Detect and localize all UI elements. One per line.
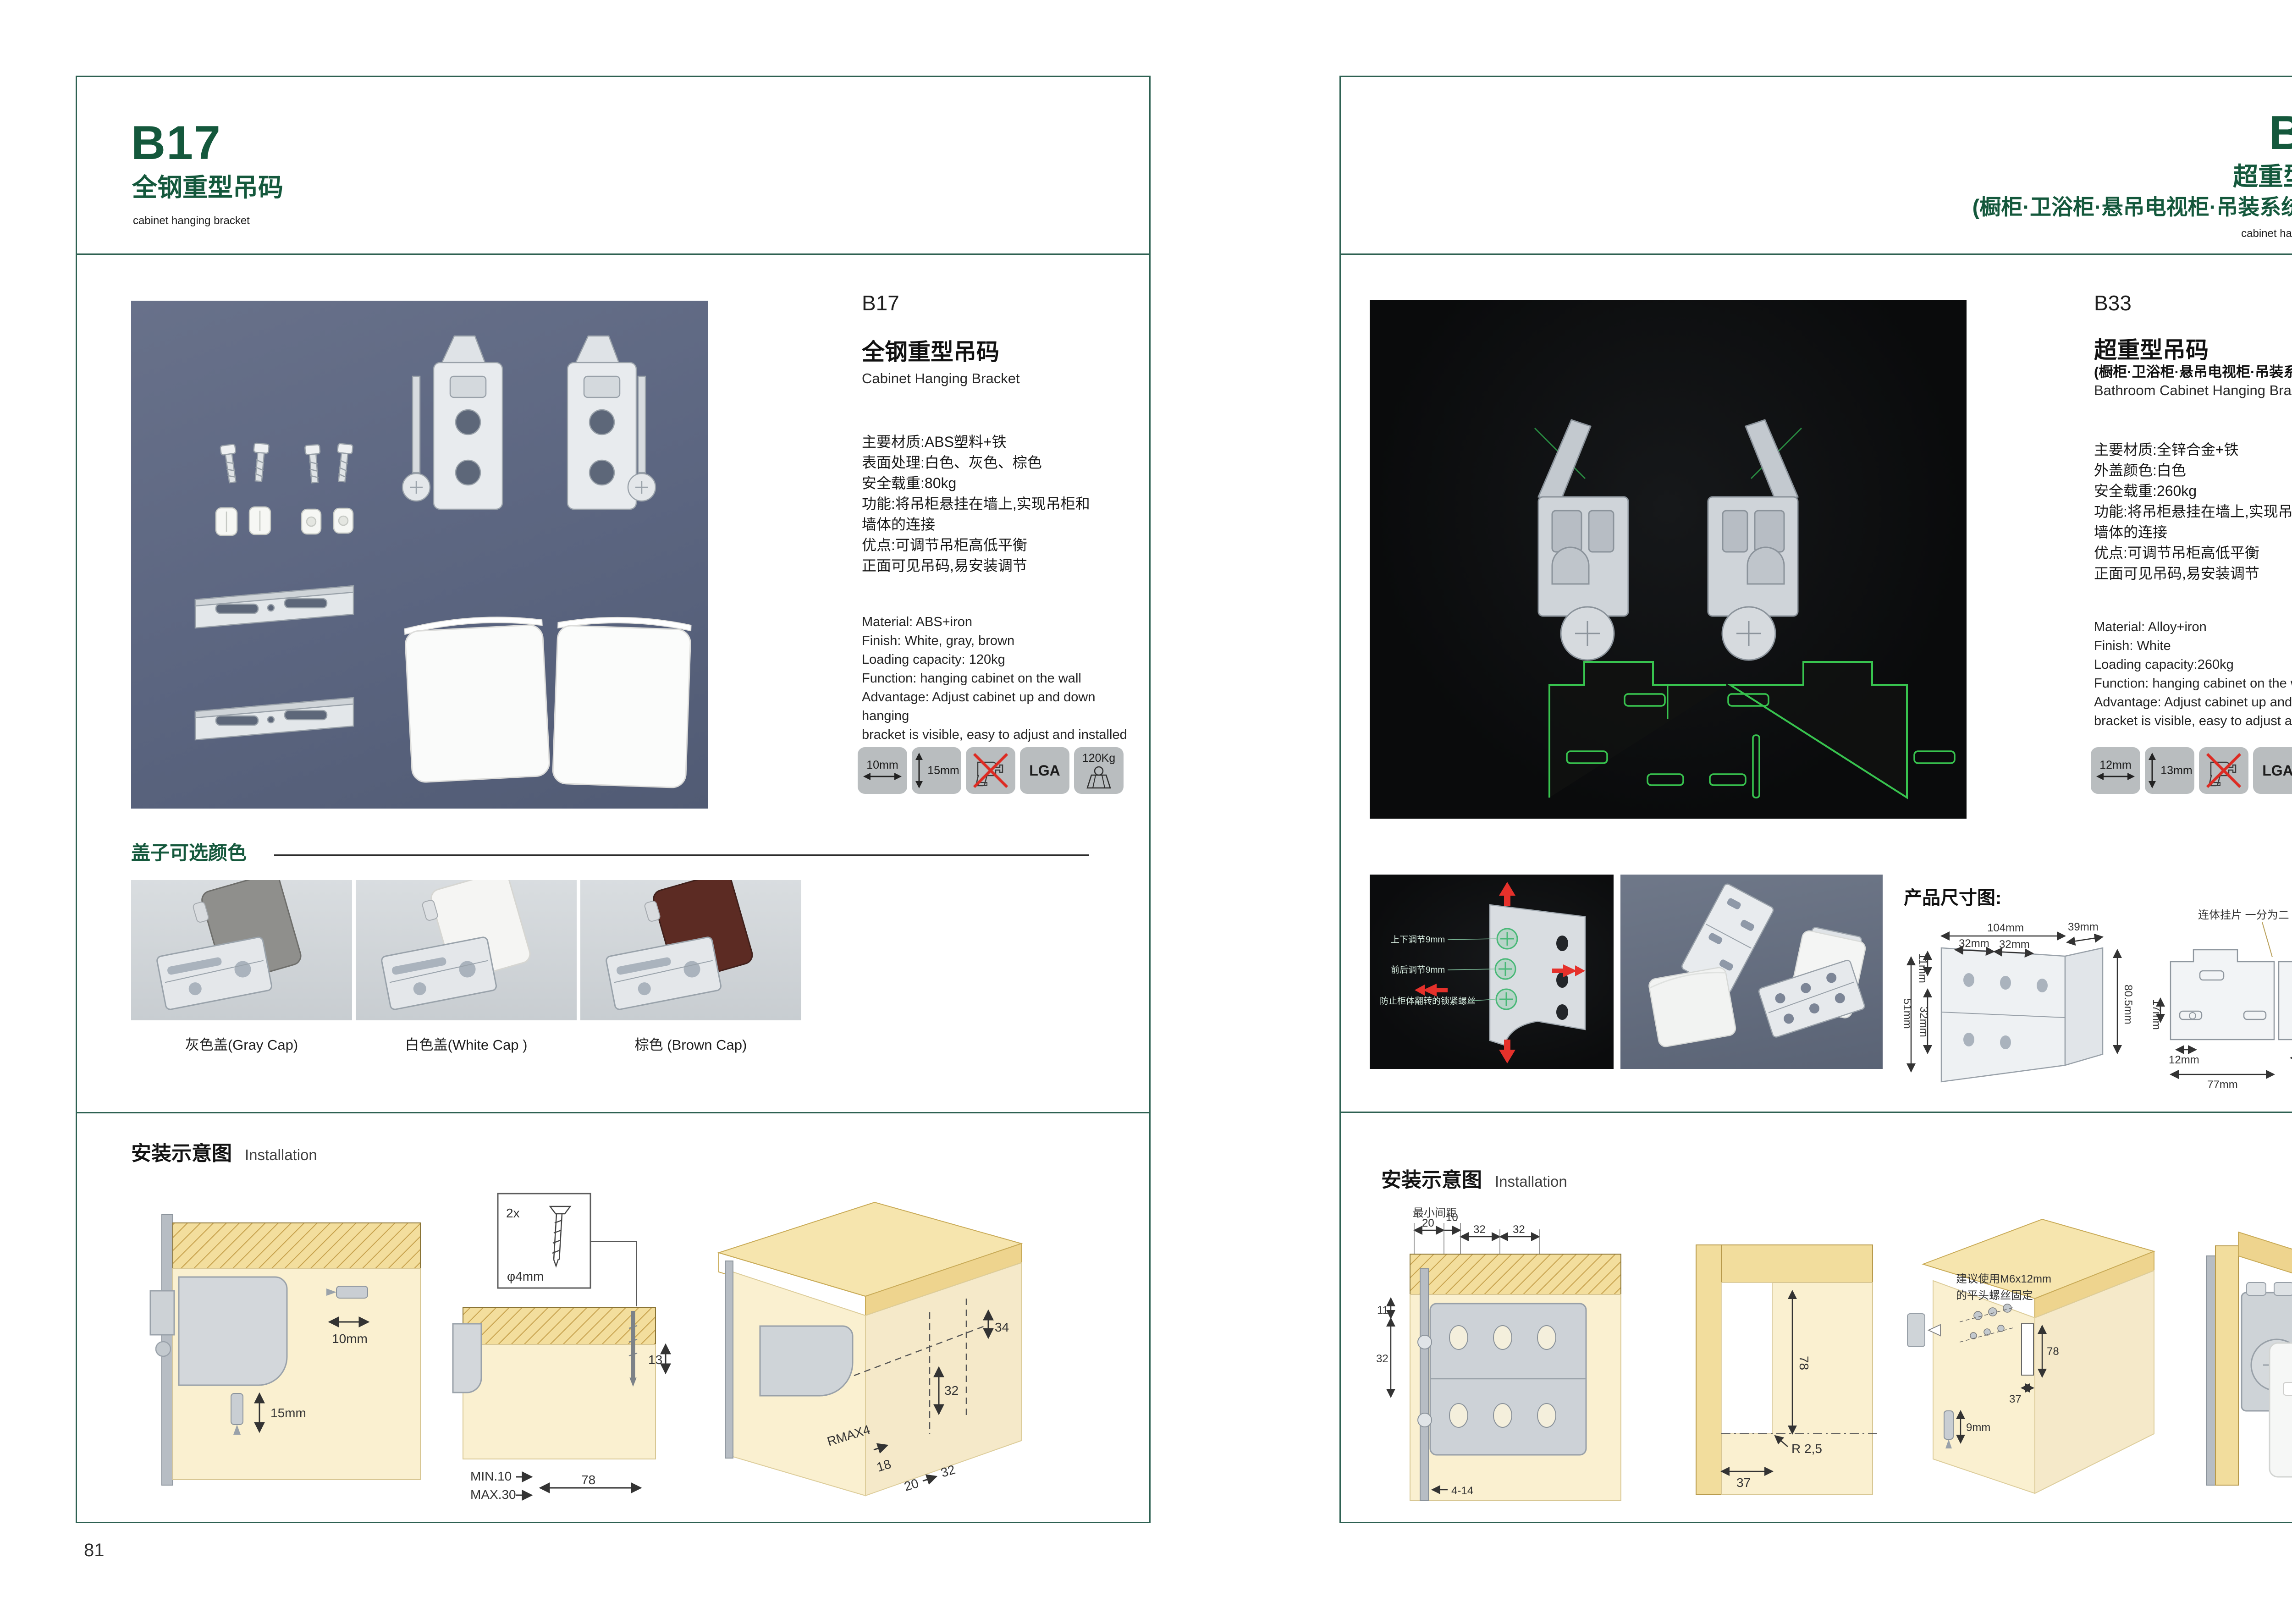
spec-line: 主要材质:ABS塑料+铁: [862, 432, 1146, 452]
dims-drawings: 104mm 32mm 32mm 39mm 80.5mm 11mm 51mm 32…: [1895, 902, 2292, 1108]
install-divider: [77, 1112, 1149, 1113]
specs-cn: 主要材质:全锌合金+铁 外盖颜色:白色 安全载重:260kg 功能:将吊柜悬挂在…: [2094, 440, 2292, 584]
spec-line: Function: hanging cabinet on the wall: [862, 669, 1146, 688]
spec-line: 优点:可调节吊柜高低平衡: [862, 535, 1146, 556]
horizontal-arrow-icon: [863, 771, 902, 782]
note-flathead: 的平头螺丝固定: [1956, 1289, 2033, 1302]
dim-32b: 32mm: [1999, 938, 2030, 951]
dim-11: 11: [1377, 1304, 1388, 1316]
dim-32b: 32: [1513, 1223, 1525, 1236]
weight-icon: [1082, 766, 1116, 789]
cap-label-white: 白色盖(White Cap ): [356, 1033, 577, 1054]
install-heading-cn: 安装示意图: [1381, 1169, 1482, 1191]
spec-line: 外盖颜色:白色: [2094, 460, 2292, 481]
dim-77mm: 77mm: [2207, 1079, 2238, 1091]
spec-line: 正面可见吊码,易安装调节: [862, 556, 1146, 576]
horizontal-arrow-icon: [2096, 771, 2135, 782]
specs-en: Material: Alloy+iron Finish: White Loadi…: [2094, 618, 2292, 731]
mounted-bracket: [2242, 1283, 2292, 1477]
install-divider: [1341, 1112, 2292, 1113]
spec-line: Material: Alloy+iron: [2094, 618, 2292, 637]
dim-32l: 32: [1376, 1353, 1388, 1365]
dim-37: 37: [1736, 1475, 1751, 1490]
dim-15mm: 15mm: [270, 1406, 306, 1420]
spec-line: 安全载重:260kg: [2094, 481, 2292, 501]
spec-line: 主要材质:全锌合金+铁: [2094, 440, 2292, 460]
cap-swatch-white: [356, 880, 577, 1020]
label-frontback: 前后调节9mm: [1391, 965, 1445, 975]
spec-line: 墙体的连接: [2094, 522, 2292, 543]
parts-photo: [1620, 875, 1883, 1069]
adjust-screws: [1495, 929, 1517, 1009]
spec-line: Advantage: Adjust cabinet up and down ha…: [862, 688, 1146, 726]
dim-min10: MIN.10: [470, 1469, 512, 1483]
info-column-b33: B33 超重型吊码 (橱柜·卫浴柜·悬吊电视柜·吊装系统 专用) Bathroo…: [2094, 292, 2292, 731]
parts-photo-art: [1620, 875, 1883, 1069]
spec-line: Material: ABS+iron: [862, 613, 1146, 632]
info-name-en: Bathroom Cabinet Hanging Bracket: [2094, 381, 2292, 400]
info-code: B17: [862, 292, 1146, 314]
feature-badges-b33: 12mm 13mm LGA 260Kg: [2091, 747, 2292, 794]
dim-13: 13: [648, 1353, 662, 1367]
page-b17: B17 全钢重型吊码 cabinet hanging bracket: [76, 76, 1151, 1523]
badge-cert-label: LGA: [1029, 762, 1060, 779]
specs-en: Material: ABS+iron Finish: White, gray, …: [862, 613, 1146, 744]
product-photo-b17-art: [131, 301, 708, 809]
product-photo-b33-art: [1370, 300, 1967, 819]
spec-line: Loading capacity:260kg: [2094, 655, 2292, 674]
badge-load: 120Kg: [1074, 747, 1124, 794]
install-heading-en: Installation: [1495, 1173, 1567, 1190]
dim-4-14: 4-14: [1451, 1485, 1473, 1497]
dim-10mm: 10mm: [332, 1332, 368, 1346]
cap-white-art: [356, 880, 577, 1020]
part-plate-bottom: [1758, 959, 1865, 1038]
wall-plates: [195, 586, 353, 740]
badge-panel-height: 15mm: [912, 747, 961, 794]
badge-cert: LGA: [1020, 747, 1069, 794]
dim-10: 10: [1446, 1211, 1458, 1224]
spec-line: Function: hanging cabinet on the wall: [2094, 674, 2292, 693]
install-heading-en: Installation: [245, 1146, 317, 1163]
dim-r25: R 2,5: [1791, 1442, 1822, 1456]
badge-width-label: 12mm: [2099, 760, 2131, 771]
dim-20: 20: [1422, 1217, 1434, 1229]
page-title-code: B17: [131, 119, 221, 167]
dim-17mm: 17mm: [2150, 999, 2163, 1030]
badge-load-label: 120Kg: [1082, 753, 1115, 764]
page-title-sub: (橱柜·卫浴柜·悬吊电视柜·吊装系统 专用): [1972, 196, 2292, 218]
part-cover-white: [1648, 966, 1736, 1047]
product-photo-b17: [131, 301, 708, 809]
dim-plates-drawing: 连体挂片 一分为二 55mm 39mm 55mm 17mm 12mm 77mm: [2150, 909, 2292, 1091]
bracket-left: [1538, 420, 1628, 660]
install-heading-b17: 安装示意图Installation: [131, 1137, 317, 1166]
dim-12mm: 12mm: [2169, 1054, 2199, 1066]
page-title-cn: 超重型吊码: [2233, 164, 2292, 189]
dim-11mm: 11mm: [1917, 953, 1929, 983]
header-divider: [1341, 253, 2292, 255]
dim-78: 78: [1797, 1356, 1811, 1370]
page-number-left: 81: [84, 1540, 105, 1561]
badge-height-label: 15mm: [927, 765, 959, 776]
spec-line: bracket is visible, easy to adjust and i…: [2094, 712, 2292, 731]
badge-width-label: 10mm: [866, 760, 898, 771]
page-title-code: B33: [2269, 109, 2292, 157]
feature-badges-b17: 10mm 15mm LGA 120Kg: [858, 747, 1124, 794]
install-drawing-spacing: 最小间距 20 10 32 32 11 32 4-14: [1371, 1200, 1646, 1521]
label-joined-plate: 连体挂片 一分为二: [2198, 909, 2289, 921]
spec-line: Finish: White: [2094, 637, 2292, 655]
leader-lines: [1448, 939, 1496, 1001]
install-drawing-mounted: [2189, 1214, 2292, 1516]
spec-line: Finish: White, gray, brown: [862, 632, 1146, 650]
badge-panel-height: 13mm: [2145, 747, 2194, 794]
info-name-sub: (橱柜·卫浴柜·悬吊电视柜·吊装系统 专用): [2094, 363, 2292, 381]
label-updown: 上下调节9mm: [1391, 935, 1445, 945]
header-divider: [77, 253, 1149, 255]
spec-line: 墙体的连接: [862, 514, 1146, 535]
note-m6x12: 建议使用M6x12mm: [1956, 1273, 2051, 1285]
cap-brown-art: [580, 880, 801, 1020]
info-name-en: Cabinet Hanging Bracket: [862, 369, 1146, 388]
dim-max30: MAX.30: [470, 1487, 516, 1502]
dim-32a: 32: [1473, 1223, 1486, 1236]
bracket-right: [1708, 420, 1798, 660]
no-drill-icon: [970, 750, 1011, 791]
cap-swatch-gray: [131, 880, 352, 1020]
badge-no-drill: [2199, 747, 2248, 794]
install-drawing-section: 10mm 15mm: [137, 1195, 430, 1507]
spec-line: 优点:可调节吊柜高低平衡: [2094, 543, 2292, 563]
specs-cn: 主要材质:ABS塑料+铁 表面处理:白色、灰色、棕色 安全载重:80kg 功能:…: [862, 432, 1146, 576]
spec-line: 安全载重:80kg: [862, 473, 1146, 494]
install-drawing-cutout: 78 R 2,5 37: [1678, 1232, 1884, 1512]
dim-37: 37: [2009, 1393, 2022, 1405]
screws: [220, 443, 353, 484]
dim-80-5mm: 80.5mm: [2122, 985, 2134, 1024]
cap-gray-art: [131, 880, 352, 1020]
install-drawing-cabinet: 34 32 RMAX4 18 20 32: [691, 1175, 1049, 1514]
dim-2x: 2x: [506, 1206, 520, 1220]
spec-line: 表面处理:白色、灰色、棕色: [862, 452, 1146, 473]
install-drawing-cabinet-b33: 建议使用M6x12mm 的平头螺丝固定 78 37 9mm: [1905, 1195, 2161, 1521]
spec-line: 功能:将吊柜悬挂在墙上,实现吊柜和: [862, 494, 1146, 514]
dim-34: 34: [995, 1320, 1009, 1334]
label-lockscrew: 防止柜体翻转的锁紧螺丝: [1380, 996, 1476, 1006]
metal-brackets: [402, 336, 656, 509]
wall-plate-outline: [1549, 662, 1907, 798]
cap-swatch-brown: [580, 880, 801, 1020]
vertical-arrow-icon: [914, 753, 925, 788]
page-subtitle-en: cabinet hanging bracket: [133, 215, 250, 226]
badge-height-label: 13mm: [2160, 765, 2192, 776]
dim-78: 78: [581, 1473, 595, 1487]
cap-label-brown: 棕色 (Brown Cap): [580, 1033, 801, 1054]
spec-line: 功能:将吊柜悬挂在墙上,实现吊柜和: [2094, 501, 2292, 522]
adjustment-photo: 上下调节9mm 前后调节9mm 防止柜体翻转的锁紧螺丝: [1370, 875, 1614, 1069]
bracket-plate: [1418, 1304, 1586, 1455]
badge-panel-width: 12mm: [2091, 747, 2140, 794]
dim-bracket-pictorial: 104mm 32mm 32mm 39mm 80.5mm 11mm 51mm 32…: [1901, 921, 2134, 1082]
spec-line: Loading capacity: 120kg: [862, 650, 1146, 669]
vertical-arrow-icon: [2147, 753, 2158, 788]
dim-32c: 32mm: [1917, 1007, 1930, 1037]
caps-heading-rule: [274, 854, 1089, 856]
spec-line: bracket is visible, easy to adjust and i…: [862, 726, 1146, 744]
badge-cert: LGA: [2253, 747, 2292, 794]
install-heading-cn: 安装示意图: [131, 1142, 232, 1165]
page-subtitle-en: cabinet hanging bracket: [2241, 228, 2292, 239]
white-covers: [404, 614, 691, 788]
info-column-b17: B17 全钢重型吊码 Cabinet Hanging Bracket 主要材质:…: [862, 292, 1146, 744]
no-drill-icon: [2204, 750, 2244, 791]
caps-section-heading: 盖子可选颜色: [131, 843, 247, 863]
product-photo-b33: [1370, 300, 1967, 819]
adjustment-photo-art: 上下调节9mm 前后调节9mm 防止柜体翻转的锁紧螺丝: [1370, 875, 1614, 1069]
dim-39mm: 39mm: [2068, 921, 2099, 933]
dim-104mm: 104mm: [1987, 922, 2024, 934]
info-code: B33: [2094, 292, 2292, 314]
dim-32a: 32mm: [1959, 937, 1989, 950]
install-heading-b33: 安装示意图Installation: [1381, 1163, 1567, 1193]
plastic-anchors: [216, 507, 353, 535]
info-name-cn: 超重型吊码: [2094, 337, 2292, 363]
spec-line: Advantage: Adjust cabinet up and down ha…: [2094, 693, 2292, 712]
badge-cert-label: LGA: [2262, 762, 2292, 779]
dim-phi4: φ4mm: [507, 1269, 544, 1283]
install-drawing-screw: 2x φ4mm 13 MIN.10 MAX.30 78: [444, 1191, 678, 1507]
dim-9mm: 9mm: [1966, 1421, 1990, 1434]
info-name-cn: 全钢重型吊码: [862, 339, 1146, 365]
dim-32v: 32: [944, 1383, 959, 1398]
badge-panel-width: 10mm: [858, 747, 907, 794]
cap-label-gray: 灰色盖(Gray Cap): [131, 1033, 352, 1054]
page-title-cn: 全钢重型吊码: [132, 175, 283, 200]
badge-no-drill: [966, 747, 1015, 794]
catalog-spread: { "left": { "page_no": "81", "header": {…: [0, 0, 2292, 1624]
dim-51mm: 51mm: [1901, 998, 1913, 1029]
adjust-labels: 上下调节9mm 前后调节9mm 防止柜体翻转的锁紧螺丝: [1380, 935, 1476, 1006]
dim-78: 78: [2047, 1345, 2059, 1358]
spec-line: 正面可见吊码,易安装调节: [2094, 563, 2292, 584]
caps-row: [131, 880, 801, 1020]
page-b33: B33 超重型吊码 (橱柜·卫浴柜·悬吊电视柜·吊装系统 专用) cabinet…: [1339, 76, 2292, 1523]
caps-labels: 灰色盖(Gray Cap) 白色盖(White Cap ) 棕色 (Brown …: [131, 1033, 801, 1054]
